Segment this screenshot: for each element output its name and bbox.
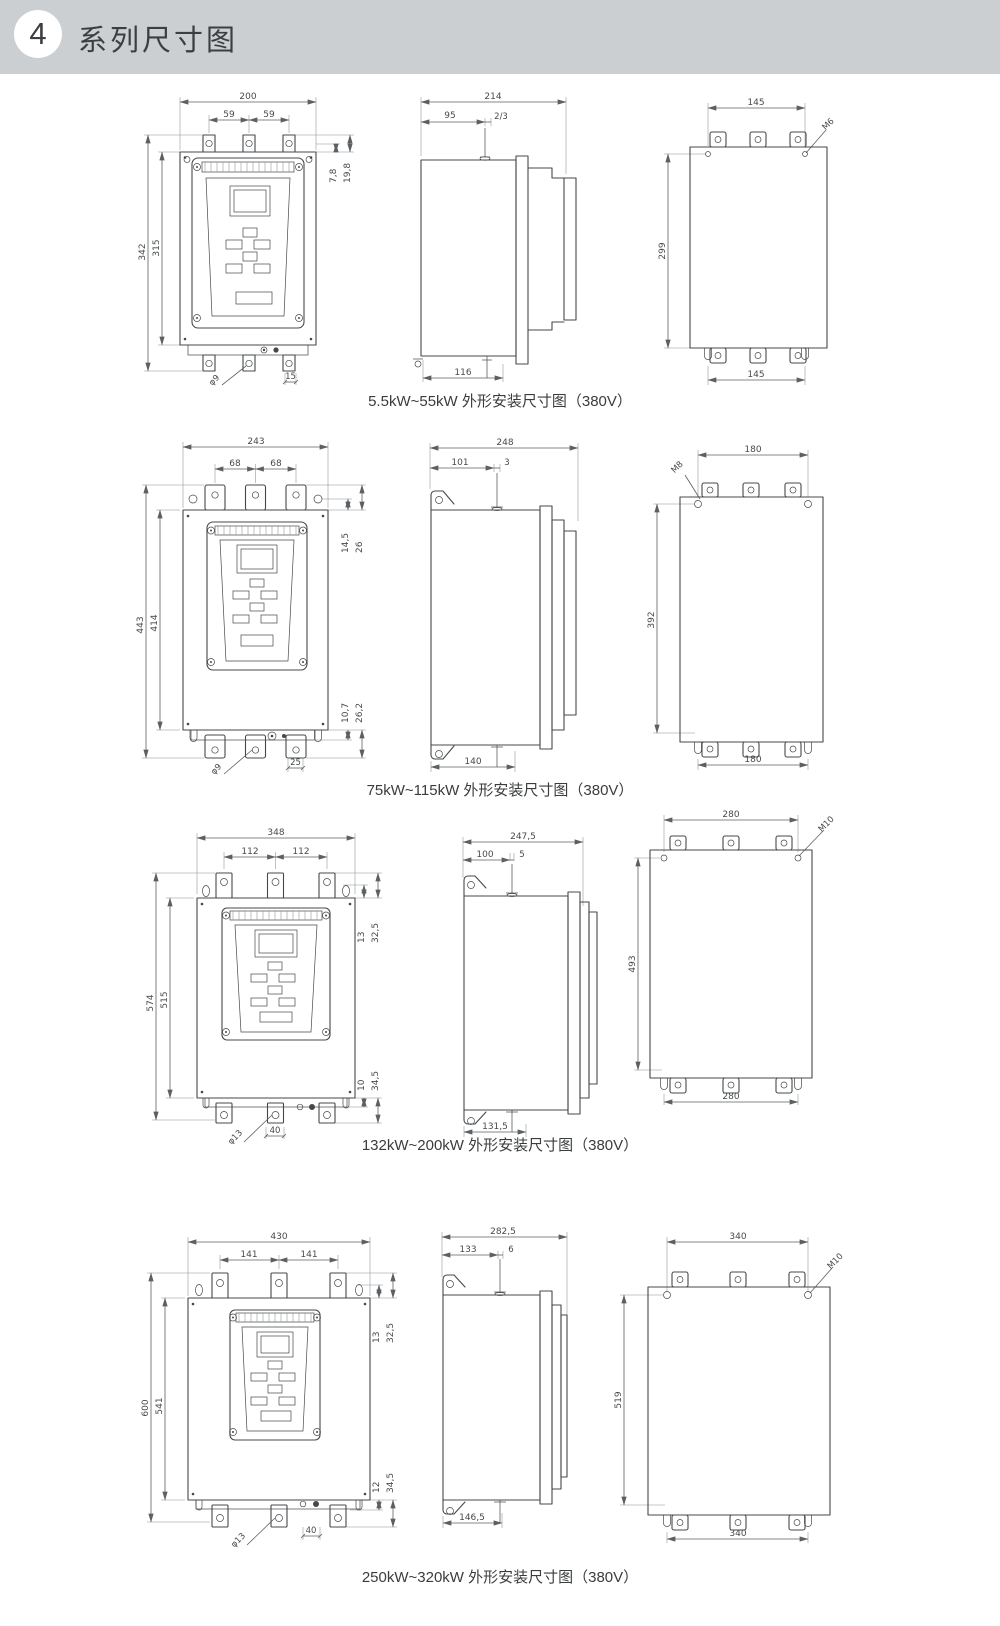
dim-top-offset2: 19,8 xyxy=(343,163,353,183)
side-view-75kw: 248 101 3 140 xyxy=(395,425,585,775)
dim-top-offset1: 13 xyxy=(372,1332,382,1343)
dim-top-offset2: 32,5 xyxy=(386,1323,396,1343)
dim-pitch: 141 xyxy=(240,1250,257,1260)
dim-height-inner: 414 xyxy=(150,614,160,631)
dim-offset: 133 xyxy=(459,1245,476,1255)
dim-hole: φ9 xyxy=(207,373,222,388)
section-number-badge: 4 xyxy=(14,10,62,58)
dim-top: 280 xyxy=(722,810,739,820)
dim-top-offset1: 13 xyxy=(357,932,367,943)
figure-caption: 250kW~320kW 外形安装尺寸图（380V） xyxy=(0,1566,1000,1587)
figure-caption: 75kW~115kW 外形安装尺寸图（380V） xyxy=(0,779,1000,800)
screw-leader xyxy=(806,130,826,153)
dim-bottom: 116 xyxy=(454,368,471,378)
device-outline xyxy=(183,485,328,758)
side-view-132kw: 247,5 100 5 131,5 xyxy=(428,798,598,1143)
keypad-buttons xyxy=(251,1361,295,1405)
figure-caption: 5.5kW~55kW 外形安装尺寸图（380V） xyxy=(0,390,1000,411)
dim-gap: 5 xyxy=(519,850,524,860)
dim-top: 340 xyxy=(729,1232,746,1242)
hole-leader xyxy=(222,366,246,385)
device-outline xyxy=(197,873,355,1123)
dim-gap: 3 xyxy=(504,458,509,468)
side-view-5kw: 214 95 2/3 116 xyxy=(388,88,583,388)
device-outline xyxy=(464,864,597,1132)
dim-depth: 214 xyxy=(484,92,501,102)
section-header-band: 4 系列尺寸图 xyxy=(0,0,1000,74)
dim-width: 200 xyxy=(239,92,256,102)
dim-height-outer: 342 xyxy=(138,243,148,260)
dim-pitch: 112 xyxy=(241,847,258,857)
dim-hole: φ13 xyxy=(229,1531,248,1550)
dim-bottom-offset1: 10,7 xyxy=(341,703,351,723)
dim-slot: 15 xyxy=(285,372,296,382)
hole-leader xyxy=(224,750,252,774)
dim-bottom-offset2: 26,2 xyxy=(355,703,365,723)
dim-offset: 95 xyxy=(444,111,455,121)
dim-depth: 247,5 xyxy=(510,832,536,842)
screw-size: M10 xyxy=(826,1252,846,1272)
dim-pitch: 59 xyxy=(223,110,235,120)
dim-bottom: 131,5 xyxy=(482,1122,508,1132)
dim-top: 145 xyxy=(747,98,764,108)
dim-height-inner: 541 xyxy=(155,1397,165,1414)
dim-pitch: 68 xyxy=(229,459,241,469)
keypad-buttons xyxy=(226,228,270,273)
back-view-250kw: 340 519 340 M10 xyxy=(590,1193,860,1553)
dim-height-inner: 515 xyxy=(160,991,170,1008)
dim-slot: 25 xyxy=(290,758,301,768)
keypad-buttons xyxy=(233,579,277,623)
dim-bottom-offset2: 34,5 xyxy=(386,1473,396,1493)
dim-bottom: 145 xyxy=(747,370,764,380)
dim-height: 392 xyxy=(647,611,657,628)
dim-hole: φ9 xyxy=(209,762,224,777)
dim-height: 519 xyxy=(614,1391,624,1408)
hole-leader xyxy=(247,1518,275,1545)
device-outline xyxy=(180,135,316,371)
screw-size: M6 xyxy=(821,117,837,133)
back-view-75kw: 180 392 180 M8 xyxy=(615,425,855,770)
dim-bottom-offset2: 34,5 xyxy=(371,1071,381,1091)
dim-offset: 100 xyxy=(476,850,493,860)
dim-offset: 101 xyxy=(451,458,468,468)
dim-top-offset2: 26 xyxy=(355,541,365,553)
dim-pitch: 112 xyxy=(292,847,309,857)
dim-width: 348 xyxy=(267,828,284,838)
dim-pitch: 141 xyxy=(300,1250,317,1260)
screw-size: M10 xyxy=(817,815,837,835)
page-title: 系列尺寸图 xyxy=(78,17,238,59)
back-view-5kw: 145 299 145 M6 xyxy=(618,88,853,393)
device-outline xyxy=(431,473,576,767)
device-outline xyxy=(650,836,812,1093)
front-view-75kw: 243 68 68 443 414 14,5 26 10,7 26,2 φ9 2 xyxy=(130,425,390,777)
screw-size: M8 xyxy=(670,460,686,476)
back-view-132kw: 280 493 280 M10 xyxy=(618,798,868,1133)
dim-pitch: 59 xyxy=(263,110,275,120)
dim-width: 430 xyxy=(270,1232,287,1242)
dim-height-outer: 600 xyxy=(141,1399,151,1416)
dim-bottom-offset1: 12 xyxy=(372,1482,382,1493)
device-outline xyxy=(648,1272,830,1530)
side-view-250kw: 282,5 133 6 146,5 xyxy=(415,1193,595,1548)
device-outline xyxy=(690,132,827,363)
dim-bottom: 146,5 xyxy=(459,1513,485,1523)
dim-top-offset2: 32,5 xyxy=(371,923,381,943)
dim-height-outer: 443 xyxy=(136,616,146,633)
dim-depth: 248 xyxy=(496,438,513,448)
dim-gap: 6 xyxy=(508,1245,513,1255)
dim-width: 243 xyxy=(247,437,264,447)
dim-top-offset1: 7,8 xyxy=(329,168,339,183)
device-outline xyxy=(443,1259,567,1523)
device-outline xyxy=(413,128,576,378)
dim-bottom-offset1: 10 xyxy=(357,1079,367,1091)
front-view-5kw: 200 59 59 342 315 7,8 19,8 φ9 15 xyxy=(130,88,380,388)
dim-pitch: 68 xyxy=(270,459,282,469)
device-outline xyxy=(680,483,823,757)
dim-top: 180 xyxy=(744,445,761,455)
dim-depth: 282,5 xyxy=(490,1227,516,1237)
dim-gap: 2/3 xyxy=(494,112,508,122)
dim-slot: 40 xyxy=(306,1526,317,1536)
device-outline xyxy=(188,1273,370,1527)
front-view-250kw: 430 141 141 600 541 13 32,5 12 34,5 φ13 xyxy=(135,1193,430,1561)
dim-bottom: 140 xyxy=(464,757,481,767)
dim-height-inner: 315 xyxy=(152,239,162,256)
figure-caption: 132kW~200kW 外形安装尺寸图（380V） xyxy=(0,1134,1000,1155)
front-view-132kw: 348 112 112 574 515 13 32,5 10 34,5 φ13 xyxy=(140,798,415,1148)
dim-height: 299 xyxy=(658,242,668,259)
dim-height: 493 xyxy=(628,955,638,972)
dim-height-outer: 574 xyxy=(146,994,156,1011)
dim-top-offset1: 14,5 xyxy=(341,533,351,553)
keypad-buttons xyxy=(251,962,295,1006)
